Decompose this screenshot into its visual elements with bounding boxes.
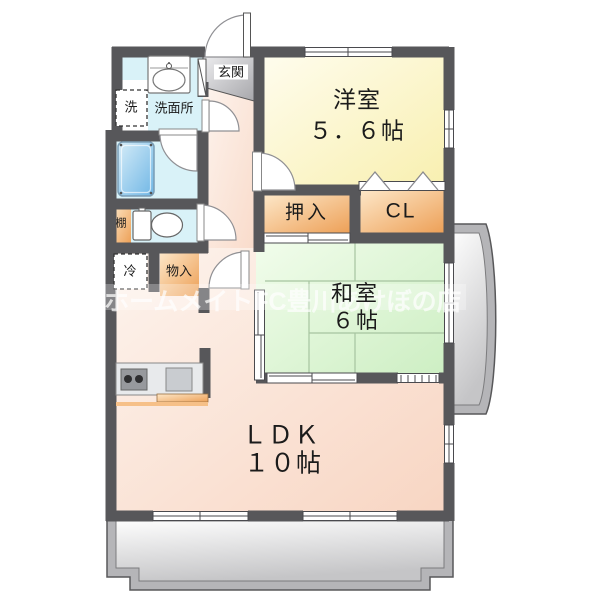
louver-window-japanese xyxy=(397,374,439,383)
fridge-label: 冷 xyxy=(123,265,136,278)
window-right-ldk xyxy=(445,425,454,463)
oshiire-label: 押入 xyxy=(285,204,329,223)
closet-label: CL xyxy=(386,201,417,222)
entrance-door xyxy=(205,13,251,57)
window-right-western xyxy=(445,110,454,148)
floorplan: ホームメイトFC豊川あけぼの店 玄関 洗 洗面所 棚 冷 物入 押入 CL 洋室… xyxy=(0,0,600,600)
entrance-label: 玄関 xyxy=(214,65,248,80)
japanese-room-name: 和室 xyxy=(331,283,379,305)
washer-label: 洗 xyxy=(124,101,137,114)
ldk-name: ＬＤＫ xyxy=(242,424,320,449)
window-bottom-left xyxy=(153,512,248,521)
kitchen-sink xyxy=(166,368,192,391)
sliding-door-japanese-bottom xyxy=(267,373,357,383)
balcony-bottom xyxy=(107,516,453,590)
sliding-door-oshiire xyxy=(264,233,350,243)
counter-edge xyxy=(157,394,208,402)
window-bottom-right xyxy=(303,512,397,521)
storage-label: 物入 xyxy=(166,265,192,278)
vanity-sink xyxy=(148,56,190,93)
watermark-text: ホームメイトFC豊川あけぼの店 xyxy=(104,282,466,318)
ldk-size: １０帖 xyxy=(244,452,322,477)
western-room-name: 洋室 xyxy=(333,89,381,112)
bathtub xyxy=(118,142,154,196)
japanese-room-size: ６帖 xyxy=(332,310,380,332)
burner xyxy=(135,375,143,383)
washroom-label: 洗面所 xyxy=(154,102,193,115)
counter-edge-thin xyxy=(116,402,208,406)
shelf-label: 棚 xyxy=(116,219,127,230)
balcony-bow-right xyxy=(452,224,496,414)
window-top-western xyxy=(305,48,392,57)
burner xyxy=(124,375,132,383)
western-room-size: ５．６帖 xyxy=(309,120,405,143)
shoe-cabinet xyxy=(198,59,206,96)
